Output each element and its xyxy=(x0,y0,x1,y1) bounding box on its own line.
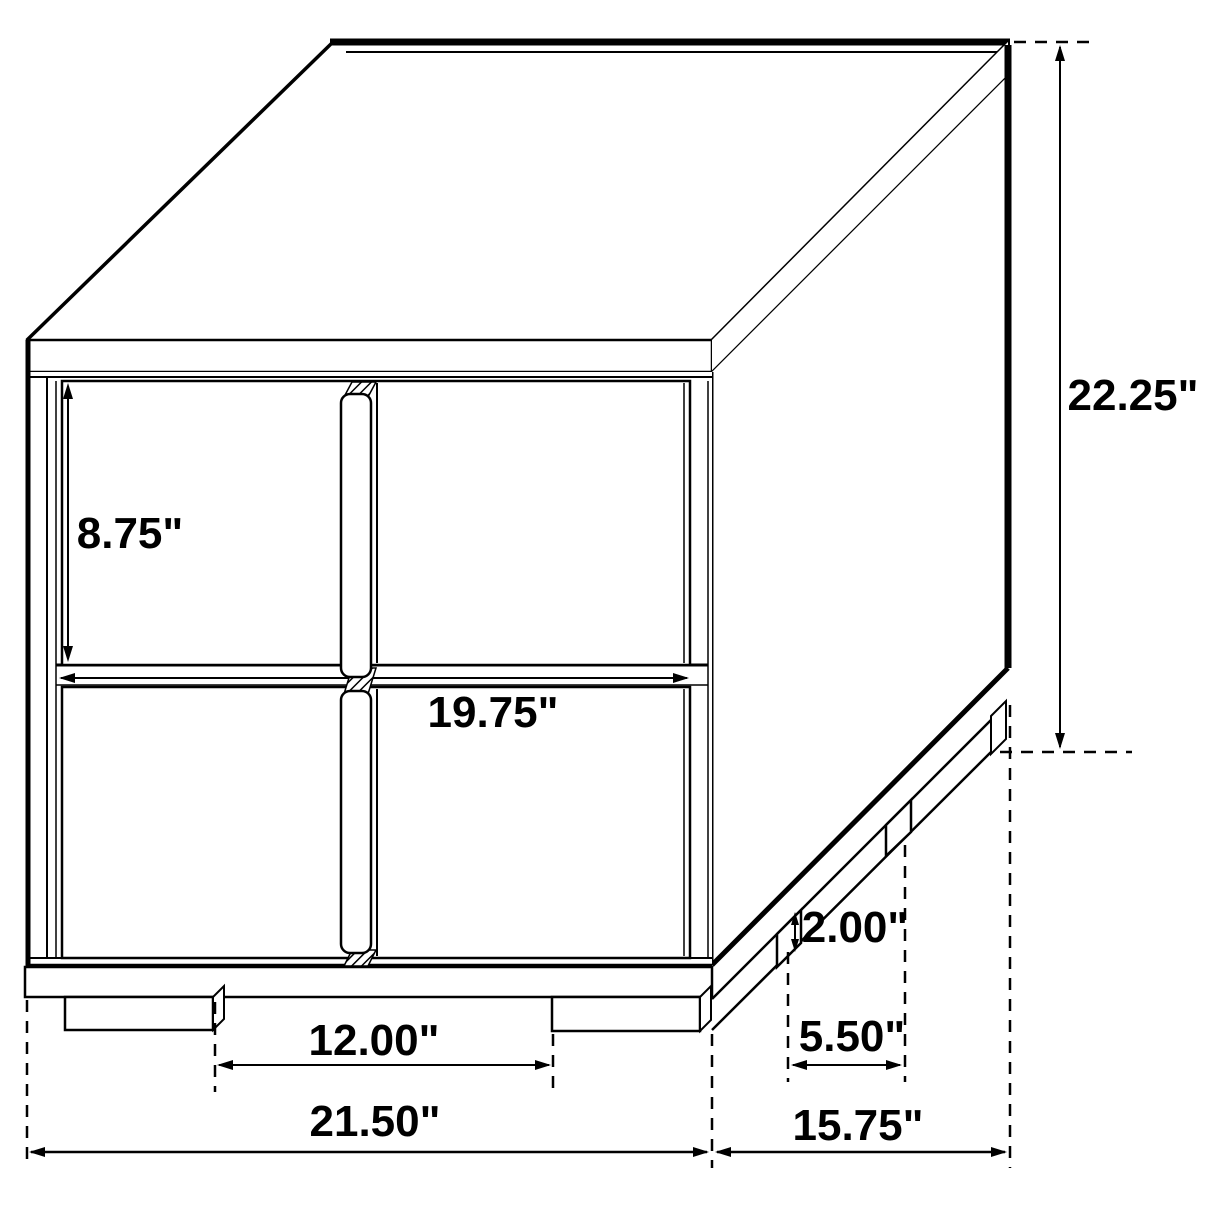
drawer-lower xyxy=(62,687,690,958)
back-leg xyxy=(991,701,1006,754)
dim-label-overall-height: 22.25" xyxy=(1068,374,1199,418)
handle-bar-lower xyxy=(341,691,371,953)
dim-label-side-leg-gap: 5.50" xyxy=(799,1015,906,1059)
dim-label-drawer-height: 8.75" xyxy=(77,512,184,556)
handle-lower xyxy=(341,691,376,966)
dim-label-overall-depth: 15.75" xyxy=(793,1104,924,1148)
nightstand-line-drawing xyxy=(0,0,1214,1214)
handle-bar-upper xyxy=(341,394,371,677)
dim-label-drawer-width: 19.75" xyxy=(428,691,559,735)
dim-label-overall-width: 21.50" xyxy=(310,1100,441,1144)
dim-label-leg-height: 2.00" xyxy=(802,906,909,950)
dimension-diagram: 8.75" 22.25" 19.75" 12.00" 21.50" 2.00" … xyxy=(0,0,1214,1214)
side-leg-back xyxy=(886,800,911,856)
dim-label-front-leg-gap: 12.00" xyxy=(309,1019,440,1063)
top-slab-front-edge xyxy=(27,340,712,372)
plinth xyxy=(25,967,712,997)
handle-upper xyxy=(341,382,376,694)
